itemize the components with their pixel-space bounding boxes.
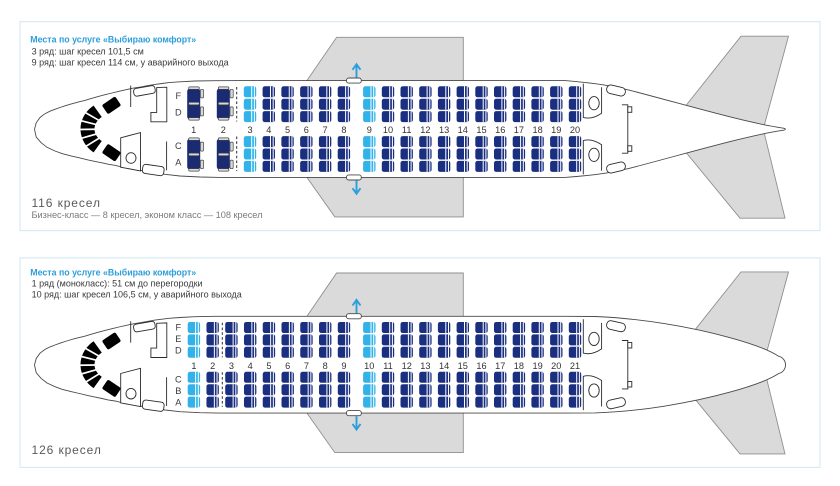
svg-text:2: 2: [221, 125, 226, 135]
svg-text:15: 15: [458, 361, 468, 371]
svg-text:18: 18: [514, 361, 524, 371]
svg-text:F: F: [175, 91, 181, 101]
svg-text:1: 1: [191, 361, 196, 371]
svg-text:D: D: [175, 107, 182, 117]
svg-text:F: F: [175, 323, 181, 333]
svg-text:Места по услуге «Выбираю комфо: Места по услуге «Выбираю комфорт»: [30, 267, 196, 277]
svg-text:20: 20: [551, 361, 561, 371]
svg-text:18: 18: [532, 125, 542, 135]
svg-text:10: 10: [383, 125, 393, 135]
svg-text:13: 13: [439, 125, 449, 135]
svg-text:13: 13: [420, 361, 430, 371]
svg-text:6: 6: [304, 125, 309, 135]
svg-text:19: 19: [551, 125, 561, 135]
svg-text:D: D: [175, 345, 182, 355]
svg-text:14: 14: [439, 361, 449, 371]
svg-text:C: C: [175, 375, 182, 385]
svg-text:B: B: [175, 386, 181, 396]
svg-text:17: 17: [514, 125, 524, 135]
svg-text:17: 17: [495, 361, 505, 371]
svg-text:Бизнес-класс — 8 кресел, эконо: Бизнес-класс — 8 кресел, эконом класс — …: [32, 210, 263, 220]
svg-text:4: 4: [266, 125, 271, 135]
svg-text:14: 14: [458, 125, 468, 135]
svg-text:2: 2: [210, 361, 215, 371]
svg-text:9: 9: [367, 125, 372, 135]
svg-text:5: 5: [285, 125, 290, 135]
svg-text:12: 12: [420, 125, 430, 135]
svg-text:7: 7: [323, 125, 328, 135]
svg-text:16: 16: [495, 125, 505, 135]
svg-text:E: E: [175, 334, 181, 344]
svg-text:1 ряд (монокласс): 51 см до пе: 1 ряд (монокласс): 51 см до перегородки: [32, 278, 203, 288]
svg-text:5: 5: [266, 361, 271, 371]
svg-text:3: 3: [247, 125, 252, 135]
svg-text:A: A: [175, 157, 182, 167]
svg-text:C: C: [175, 141, 182, 151]
svg-text:3: 3: [229, 361, 234, 371]
svg-text:126 кресел: 126 кресел: [32, 443, 102, 457]
svg-text:9 ряд: шаг кресел 114 см, у ав: 9 ряд: шаг кресел 114 см, у аварийного в…: [32, 57, 229, 67]
svg-text:116 кресел: 116 кресел: [32, 196, 101, 210]
svg-text:9: 9: [341, 361, 346, 371]
svg-text:8: 8: [323, 361, 328, 371]
svg-text:10 ряд: шаг кресел 106,5 см, у: 10 ряд: шаг кресел 106,5 см, у аварийног…: [32, 289, 242, 299]
svg-text:15: 15: [476, 125, 486, 135]
svg-text:3 ряд: шаг кресел 101,5 см: 3 ряд: шаг кресел 101,5 см: [32, 47, 144, 57]
svg-text:20: 20: [570, 125, 580, 135]
svg-text:10: 10: [364, 361, 374, 371]
svg-text:8: 8: [341, 125, 346, 135]
svg-text:6: 6: [285, 361, 290, 371]
svg-text:11: 11: [402, 125, 412, 135]
svg-text:Места по услуге «Выбираю комфо: Места по услуге «Выбираю комфорт»: [30, 35, 196, 45]
svg-text:4: 4: [248, 361, 253, 371]
svg-text:11: 11: [383, 361, 393, 371]
svg-text:12: 12: [402, 361, 412, 371]
svg-text:A: A: [175, 397, 182, 407]
svg-text:7: 7: [304, 361, 309, 371]
svg-text:1: 1: [191, 125, 196, 135]
svg-text:21: 21: [570, 361, 580, 371]
svg-text:19: 19: [532, 361, 542, 371]
svg-text:16: 16: [476, 361, 486, 371]
